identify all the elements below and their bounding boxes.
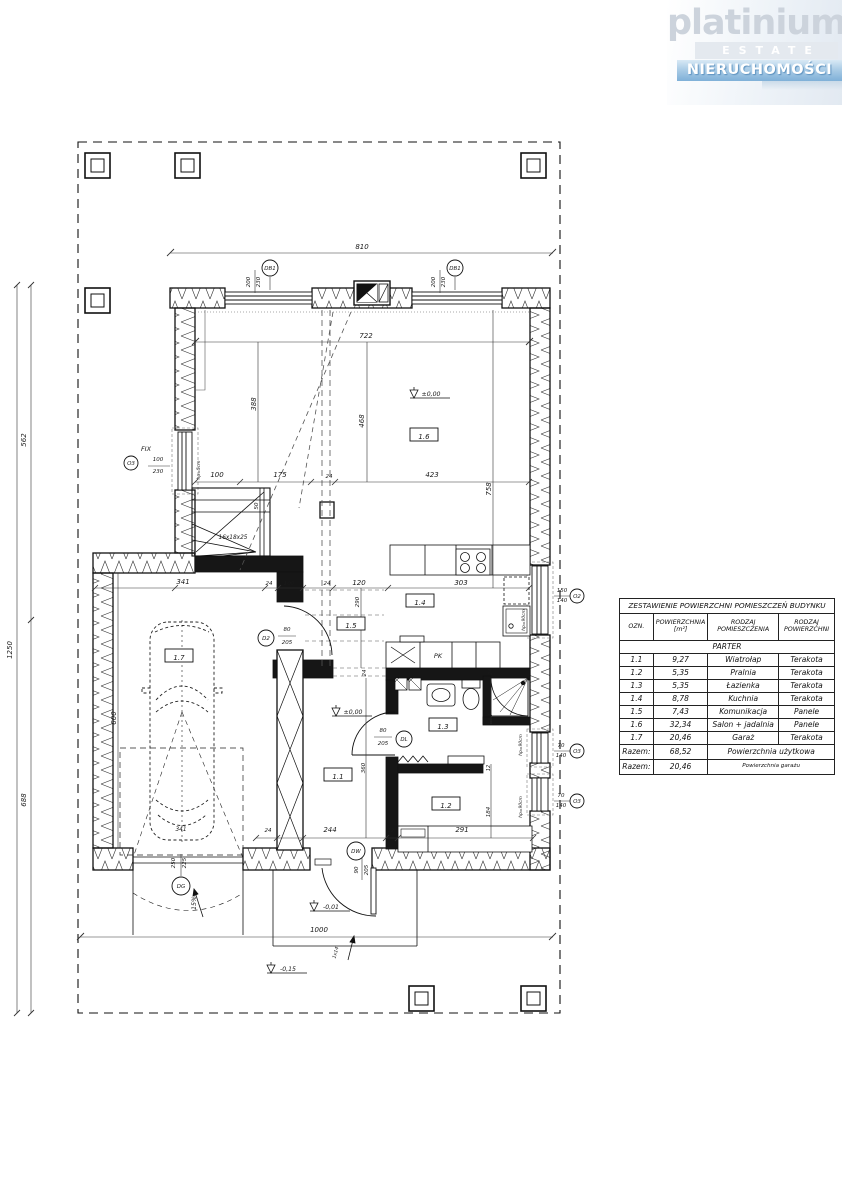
toilet <box>462 680 480 688</box>
door-D2-swing <box>284 606 332 655</box>
dim-label: 90 <box>354 866 360 873</box>
col-header-ozn: OZN. <box>620 614 654 641</box>
dim-label: FIX <box>141 445 152 453</box>
table-row: 1.720,46GarażTerakota <box>620 732 835 745</box>
dim-label: 341 <box>176 578 189 586</box>
window-O3-a <box>532 733 548 763</box>
dim-label: 291 <box>455 826 468 834</box>
dim-label: 16x18x25 <box>219 535 248 541</box>
dim-label: 70 <box>558 793 565 799</box>
fix-window <box>178 432 192 490</box>
dim-label: ±0,00 <box>422 391 441 398</box>
chimney <box>354 281 390 305</box>
dim-label: 24 <box>266 581 273 587</box>
table-row: 1.19,27WiatrołapTerakota <box>620 654 835 667</box>
table-title: ZESTAWIENIE POWIERZCHNI POMIESZCZEŃ BUDY… <box>620 599 835 614</box>
dim-label: hp=5cm <box>196 461 202 480</box>
dim-label: 230 <box>256 276 262 287</box>
area-table-body: 1.19,27WiatrołapTerakota1.25,35PralniaTe… <box>620 654 835 745</box>
tag-circle-label: DB1 <box>264 266 276 272</box>
dim-label: 120 <box>352 579 366 587</box>
fridge <box>504 577 529 604</box>
garage-partition-wall <box>277 650 303 850</box>
room-label: 1.3 <box>437 723 448 731</box>
clearance-zone <box>120 748 243 855</box>
dim-label: 303 <box>454 579 467 587</box>
dim-label: 140 <box>557 598 568 604</box>
dim-label: hp=90cm <box>518 796 524 818</box>
dim-label: 758 <box>485 482 493 496</box>
dim-label: 205 <box>364 864 370 875</box>
dim-label: 150 <box>557 588 568 594</box>
door-DW-leaf <box>371 868 376 914</box>
table-row: 1.48,78KuchniaTerakota <box>620 693 835 706</box>
stairs <box>192 488 334 556</box>
table-row: 1.25,35PralniaTerakota <box>620 667 835 680</box>
room-labels: 1.11.21.31.41.51.61.7 <box>165 428 460 810</box>
total-garage-desc: Powierzchnia garażu <box>708 760 835 775</box>
dim-label: 24 <box>326 474 333 480</box>
interior-walls <box>195 556 530 849</box>
dim-label: 722 <box>359 332 373 340</box>
dim-label: 600 <box>110 711 118 725</box>
window-O2 <box>532 566 548 634</box>
roof-outline <box>78 142 560 1013</box>
dim-label: 1x14 <box>332 946 341 959</box>
page: platinium ESTATE NIERUCHOMOŚCI <box>0 0 842 1191</box>
total-label: Razem: <box>620 745 654 760</box>
dim-label: 100 <box>284 581 295 587</box>
dim-label: 360 <box>361 762 367 773</box>
col-header-surface-type: RODZAJ POWIERZCHNI <box>779 614 835 641</box>
tag-circle-label: O3 <box>573 799 581 805</box>
dim-label: 423 <box>425 471 438 479</box>
door-DL-swing <box>352 712 395 755</box>
dim-label: 24 <box>265 828 272 834</box>
total-usable-desc: Powierzchnia użytkowa <box>708 745 835 760</box>
tag-circle-label: D2 <box>262 636 270 642</box>
room-label: 1.1 <box>332 773 343 781</box>
dim-label: hp=90cm <box>521 609 527 631</box>
garage-door <box>133 857 243 863</box>
window-O3-b <box>532 778 548 811</box>
room-label: 1.7 <box>173 654 185 662</box>
dim-label: 290 <box>355 596 361 607</box>
dim-label: hp=90cm <box>518 734 524 756</box>
dim-label: 24 <box>362 669 368 676</box>
dim-label: 225 <box>182 857 188 868</box>
dim-label: 468 <box>358 414 366 428</box>
dim-label: 250 <box>171 857 177 868</box>
dim-label: 562 <box>20 433 28 447</box>
dim-label: 810 <box>355 243 369 251</box>
dim-label: 100 <box>210 471 224 479</box>
dim-label: 205 <box>282 640 293 646</box>
floor-plan: 1.11.21.31.41.51.61.7 DB1DB1O3O2O3O3D2DL… <box>0 0 842 1191</box>
dim-label: 205 <box>378 741 389 747</box>
area-table: ZESTAWIENIE POWIERZCHNI POMIESZCZEŃ BUDY… <box>619 598 835 775</box>
dim-label: 80 <box>380 728 387 734</box>
dim-label: 388 <box>250 397 258 411</box>
room-label: 1.5 <box>345 622 357 630</box>
dim-label: 24 <box>324 581 331 587</box>
col-header-area: POWIERZCHNIA [m²] <box>653 614 708 641</box>
dim-label: 184 <box>486 806 492 817</box>
dim-label: -0,15 <box>280 966 296 973</box>
dim-label: 70 <box>558 743 565 749</box>
tag-circle-label: DG <box>177 884 186 890</box>
dim-label: 184 <box>488 713 494 724</box>
exterior-walls <box>93 288 550 870</box>
columns <box>85 153 546 1011</box>
section-parter: PARTER <box>620 641 835 654</box>
dim-label: -0,01 <box>323 904 339 911</box>
dim-label: 140 <box>556 753 567 759</box>
dim-label: 1000 <box>310 926 328 934</box>
dim-label: 1250 <box>6 641 14 659</box>
dim-label: PK <box>434 652 443 660</box>
dim-label: 100 <box>153 457 164 463</box>
total-label-2: Razem: <box>620 760 654 775</box>
dim-label: 688 <box>20 793 28 807</box>
table-row: 1.35,35ŁazienkaTerakota <box>620 680 835 693</box>
col-header-room-type: RODZAJ POMIESZCZENIA <box>708 614 779 641</box>
room-label: 1.4 <box>414 599 425 607</box>
tag-circle-label: DL <box>400 737 407 743</box>
tag-circle-label: DB1 <box>449 266 461 272</box>
dim-label: 12 <box>388 828 394 834</box>
dim-label: 50 <box>254 502 260 509</box>
dim-label: 200 <box>431 276 437 287</box>
tag-circle-label: O3 <box>127 461 135 467</box>
room-label: 1.2 <box>440 802 452 810</box>
dim-label: 230 <box>441 276 447 287</box>
dim-label: ±0,00 <box>344 709 363 716</box>
room-label: 1.6 <box>418 433 430 441</box>
table-row: 1.632,34Salon + jadalniaPanele <box>620 719 835 732</box>
stove <box>456 549 490 575</box>
dim-label: 12 <box>486 765 492 771</box>
dim-label: 341 <box>175 827 186 833</box>
total-garage-value: 20,46 <box>653 760 708 775</box>
dim-label: 15% <box>191 896 198 910</box>
dim-label: 140 <box>556 803 567 809</box>
tag-circle-label: DW <box>351 849 361 855</box>
radiator <box>398 756 428 762</box>
dim-label: 200 <box>246 276 252 287</box>
total-usable-value: 68,52 <box>653 745 708 760</box>
tag-circle-label: O3 <box>573 749 581 755</box>
dim-label: 24 <box>488 668 494 675</box>
tag-circle-label: O2 <box>573 594 581 600</box>
dim-label: 230 <box>153 469 164 475</box>
dim-label: 175 <box>273 471 287 479</box>
dim-label: 80 <box>284 627 291 633</box>
dim-label: 244 <box>323 826 336 834</box>
shelf <box>448 756 484 764</box>
shower <box>491 678 528 716</box>
table-row: 1.57,43KomunikacjaPanele <box>620 706 835 719</box>
